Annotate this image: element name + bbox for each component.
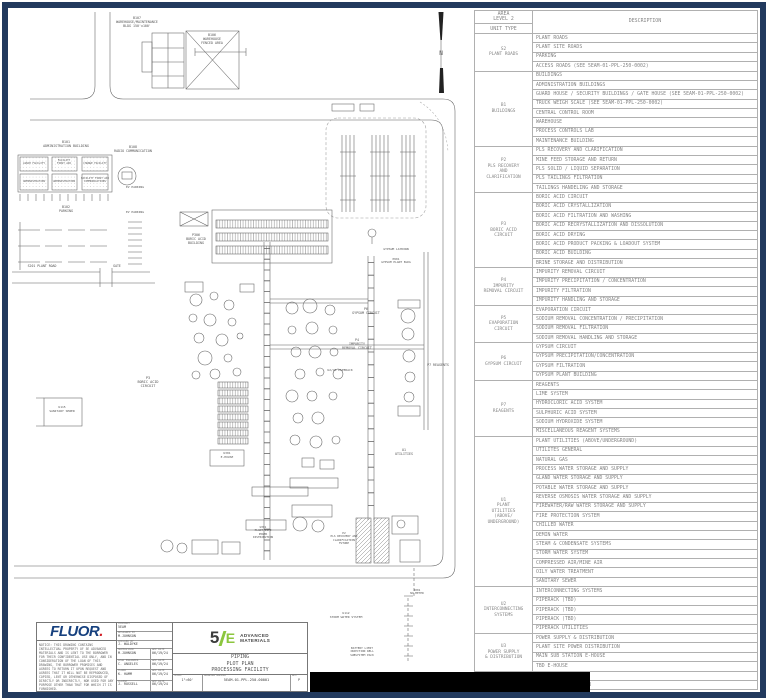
radio-communication [118,167,136,185]
plan-label: FACILITY FIRST AID [57,159,71,165]
description-cell: COMPRESSED AIR/MINE AIR [533,559,758,568]
description-cell: IMPURITY REMOVAL CIRCUIT [533,268,758,277]
description-cell: FIRE PROTECTION SYSTEM [533,512,758,521]
parking-lot [18,222,142,270]
plan-label: B102 PARKING [59,206,73,214]
table-row: P3 BORIC ACID CIRCUITBORIC ACID CIRCUIT [475,193,758,202]
description-cell: GYPSUM FILTRATION [533,362,758,371]
plan-label: BATTERY LIMIT INJECTION WELL SUBSYSTEM P… [350,647,374,657]
plan-label: LUNCH FACILITY [23,162,45,165]
description-cell: GYPSUM PLANT BUILDING [533,371,758,380]
plan-label: P4 IMPURITY REMOVAL CIRCUIT [342,339,372,351]
description-cell: UTILITES GENERAL [533,446,758,455]
title-block: FLUOR. NOTICE: THIS DRAWING CONTAINS INT… [36,622,308,692]
plan-label: N [439,50,443,57]
plan-label: P6 GYPSUM CIRCUIT [352,308,380,316]
plan-label: P3 BORIC ACID CIRCUIT [137,376,158,388]
plan-label: U1 UTILITIES [395,449,413,457]
plan-label: U115 SANITARY SEWER [49,406,74,413]
description-cell: IMPURITY FILTRATION [533,287,758,296]
description-cell: BORIC ACID BUILDING [533,249,758,258]
description-cell: GLAND WATER STORAGE AND SUPPLY [533,474,758,483]
drawing-title: PIPING PLOT PLAN PROCESSING FACILITY [173,654,307,675]
description-cell: PLANT SITE POWER DISTRIBUTION [533,643,758,652]
plan-label: GYPSUM LAYDOWN [383,248,408,252]
reagents-equipment [398,300,420,416]
unit-type-cell: P2 PLS RECOVERY AND CLARIFICATION [475,146,533,193]
description-cell: LIME SYSTEM [533,390,758,399]
description-cell: SODIUM REMOVAL FILTRATION [533,324,758,333]
unit-type-header: UNIT TYPE [475,24,533,34]
description-cell: PIPERACK (TBD) [533,596,758,605]
description-cell: PLANT ROADS [533,34,758,43]
description-cell: TAILINGS HANDELING AND STORAGE [533,184,758,193]
plan-label: B101 ADMINISTRATION BUILDING [43,141,89,149]
description-cell: STEAM & CONDENSATE SYSTEMS [533,540,758,549]
plan-label: P601 GYPSUM PLANT BLDG [381,258,411,265]
impurity-gypsum-equipment [286,299,343,488]
plan-label: B108 RADIO COMMUNICATION [114,146,152,154]
description-cell: CHILLED WATER [533,521,758,530]
description-cell: PARKING [533,52,758,61]
drawing-number-field: DRAWING NUMBER5EAM-01-PPL-250-00001 [203,675,291,691]
description-cell: BORIC ACID CRYSTALLIZATION [533,202,758,211]
description-cell: OILY WATER TREATMENT [533,568,758,577]
description-cell: BORIC ACID FILTRATION AND WASHING [533,212,758,221]
plan-label: EV PARKING [126,186,144,190]
unit-type-cell: P6 GYPSUM CIRCUIT [475,343,533,381]
table-row: U2 INTERCONNECTING SYSTEMSINTERCONNECTIN… [475,587,758,596]
plan-label: P7 REAGENTS [427,364,449,368]
table-row: B1 BUILDINGSBUILDINGS [475,71,758,80]
description-cell: MINE FEED STORAGE AND RETURN [533,155,758,164]
description-cell: MAIN SUB STATION E-HOUSE [533,652,758,661]
plan-label: U112 STORM WATER SYSTEM [330,612,363,619]
notice-text: NOTICE: THIS DRAWING CONTAINS INTELLECTU… [37,641,116,692]
plant-roads [12,12,455,578]
plan-label: S201 PLANT ROAD [28,265,57,269]
area-table: AREA LEVEL 2 DESCRIPTION UNIT TYPE S2 PL… [474,10,758,690]
unit-type-cell: S2 PLANT ROADS [475,34,533,72]
description-cell: POWER SUPPLY & DISTRIBUTION [533,634,758,643]
description-cell: SULPHURIC ACID SYSTEM [533,409,758,418]
unit-type-cell: U3 POWER SUPPLY & DISTRIBUTION [475,634,533,672]
plan-label: U301 E-HOUSE [221,452,234,459]
description-cell: PLANT UTILITIES (ABOVE/UNDERGROUND) [533,437,758,446]
table-row: P5 EVAPORATION CIRCUITEVAPORATION CIRCUI… [475,305,758,314]
storm-water-line [404,568,414,662]
description-cell: BORIC ACID CIRCUIT [533,193,758,202]
table-row: S2 PLANT ROADSPLANT ROADS [475,34,758,43]
description-cell: WAREHOUSE [533,118,758,127]
plan-label: GATE [113,265,121,269]
unit-type-cell: U1 PLANT UTILITIES (ABOVE/ UNDERGROUND) [475,437,533,587]
description-cell: TBD E-HOUSE [533,662,758,671]
description-cell: GYPSUM CIRCUIT [533,343,758,352]
description-cell: PLS RECOVERY AND CLARIFICATION [533,146,758,155]
description-cell: GYPSUM PRECIPITATION/CONCENTRATION [533,352,758,361]
description-cell: BUILDINGS [533,71,758,80]
description-cell: SODIUM REMOVAL CONCENTRATION / PRECIPITA… [533,315,758,324]
description-cell: NATURAL GAS [533,455,758,464]
plan-label: B106 WAREHOUSE FENCED AREA [201,34,223,46]
description-cell: POTABLE WATER STORAGE AND SUPPLY [533,484,758,493]
fluor-logo-dot: . [99,623,103,640]
plan-label: U2/U3 PIPERACK [327,369,352,373]
boric-acid-circuit-equipment [185,282,254,466]
plan-label: 2001 NO METER [410,589,423,596]
description-cell: REAGENTS [533,380,758,389]
power-distribution-equipment [161,487,332,554]
table-row: P6 GYPSUM CIRCUITGYPSUM CIRCUIT [475,343,758,352]
description-cell: HYDROCLORIC ACID SYSTEM [533,399,758,408]
redacted-area [310,672,590,694]
description-cell: IMPURITY HANDLING AND STORAGE [533,296,758,305]
description-cell: GUARD HOUSE / SECURITY BUILDINGS / GATE … [533,90,758,99]
description-cell: DEMIN WATER [533,530,758,539]
plan-label: P2 PLS RECOVERY AND CLARIFICATION FUTURE [331,532,358,545]
description-cell: MAINTENANCE BUILDING [533,137,758,146]
area-level-header: AREA LEVEL 2 [475,11,533,24]
description-cell: PLS TAILINGS FILTRATION [533,174,758,183]
description-header: DESCRIPTION [533,11,758,34]
scale-field: SCALE1"=60' [173,675,203,691]
approval-row: CLIENTJ. RUSSELL APP DATE06/19/24 [117,681,172,691]
description-cell: PIPERACK (TBD) [533,615,758,624]
description-cell: PROCESS WATER STORAGE AND SUPPLY [533,465,758,474]
description-cell: FIREWATER/RAW WATER STORAGE AND SUPPLY [533,502,758,511]
description-cell: SANITARY SEWER [533,577,758,586]
description-cell: REVERSE OSMOSIS WATER STORAGE AND SUPPLY [533,493,758,502]
description-cell: PLS SOLID / LIQUID SEPARATION [533,165,758,174]
description-cell: SODIUM HYDROXIDE SYSTEM [533,418,758,427]
revision-field: REVP [291,675,307,691]
gate-symbol [100,268,112,287]
description-cell: MISCELLANEOUS REAGENT SYSTEMS [533,427,758,436]
plan-label: CHANGE FACILITY [83,162,106,165]
plan-label: FACILITY FIRST AID COMMUNICATIONS [81,177,109,183]
plan-label: EV PARKING [126,211,144,215]
plot-plan-sheet: B107 WAREHOUSE/MAINTENANCE BLDG 150'x100… [0,0,768,700]
description-cell: BORIC ACID DRYING [533,230,758,239]
description-cell: STORM WATER SYSTEM [533,549,758,558]
unit-type-cell: P3 BORIC ACID CIRCUIT [475,193,533,268]
plan-label: B107 WAREHOUSE/MAINTENANCE BLDG 150'x100… [116,17,158,29]
unit-type-cell: B1 BUILDINGS [475,71,533,146]
table-row: P7 REAGENTSREAGENTS [475,380,758,389]
gypsum-laydown-symbol [368,229,376,237]
description-cell: SODIUM REMOVAL HANDLING AND STORAGE [533,334,758,343]
description-cell: IMPURITY PRECIPITATION / CONCENTRATION [533,277,758,286]
plan-label: ADMINISTRATION [23,180,45,183]
description-cell: INTERCONNECTING SYSTEMS [533,587,758,596]
table-row: P2 PLS RECOVERY AND CLARIFICATIONPLS REC… [475,146,758,155]
table-row: P4 IMPURITY REMOVAL CIRCUITIMPURITY REMO… [475,268,758,277]
description-cell: EVAPORATION CIRCUIT [533,305,758,314]
ev-parking-stalls [128,222,142,264]
plan-label: U301 PLANT SITE POWER DISTRIBUTION [253,526,273,539]
table-row: U1 PLANT UTILITIES (ABOVE/ UNDERGROUND)P… [475,437,758,446]
5e-advanced-materials-logo: 5E ADVANCED MATERIALS [173,623,307,654]
description-cell: CENTRAL CONTROL ROOM [533,109,758,118]
description-cell: PLANT SITE ROADS [533,43,758,52]
description-cell: PIPERACK (TBD) [533,605,758,614]
pond-area [326,118,426,244]
unit-type-cell: P4 IMPURITY REMOVAL CIRCUIT [475,268,533,306]
description-cell: BORIC ACID RECRYSTALLIZATION AND DISSOLU… [533,221,758,230]
table-row: U3 POWER SUPPLY & DISTRIBUTIONPOWER SUPP… [475,634,758,643]
description-cell: PROCESS CONTROLS LAB [533,127,758,136]
pls-future-area [356,516,420,563]
unit-type-cell: P5 EVAPORATION CIRCUIT [475,305,533,343]
unit-type-cell: P7 REAGENTS [475,380,533,436]
description-cell: ACCESS ROADS (SEE 5EAM-01-PPL-250-0002) [533,62,758,71]
description-cell: BRINE STORAGE AND DISTRIBUTION [533,259,758,268]
description-cell: PIPERACK UTILITIES [533,624,758,633]
plan-label: ADMINISTRATION [53,180,75,183]
description-cell: TRUCK WEIGH SCALE (SEE 5EAM-01-PPL-250-0… [533,99,758,108]
description-cell: BORIC ACID PRODUCT PACKING & LOADOUT SYS… [533,240,758,249]
plan-label: P306 BORIC ACID BUILDING [186,234,206,246]
description-cell: ADMINISTRATION BUILDINGS [533,80,758,89]
fluor-logo: FLUOR. [37,623,116,641]
unit-type-cell: U2 INTERCONNECTING SYSTEMS [475,587,533,634]
